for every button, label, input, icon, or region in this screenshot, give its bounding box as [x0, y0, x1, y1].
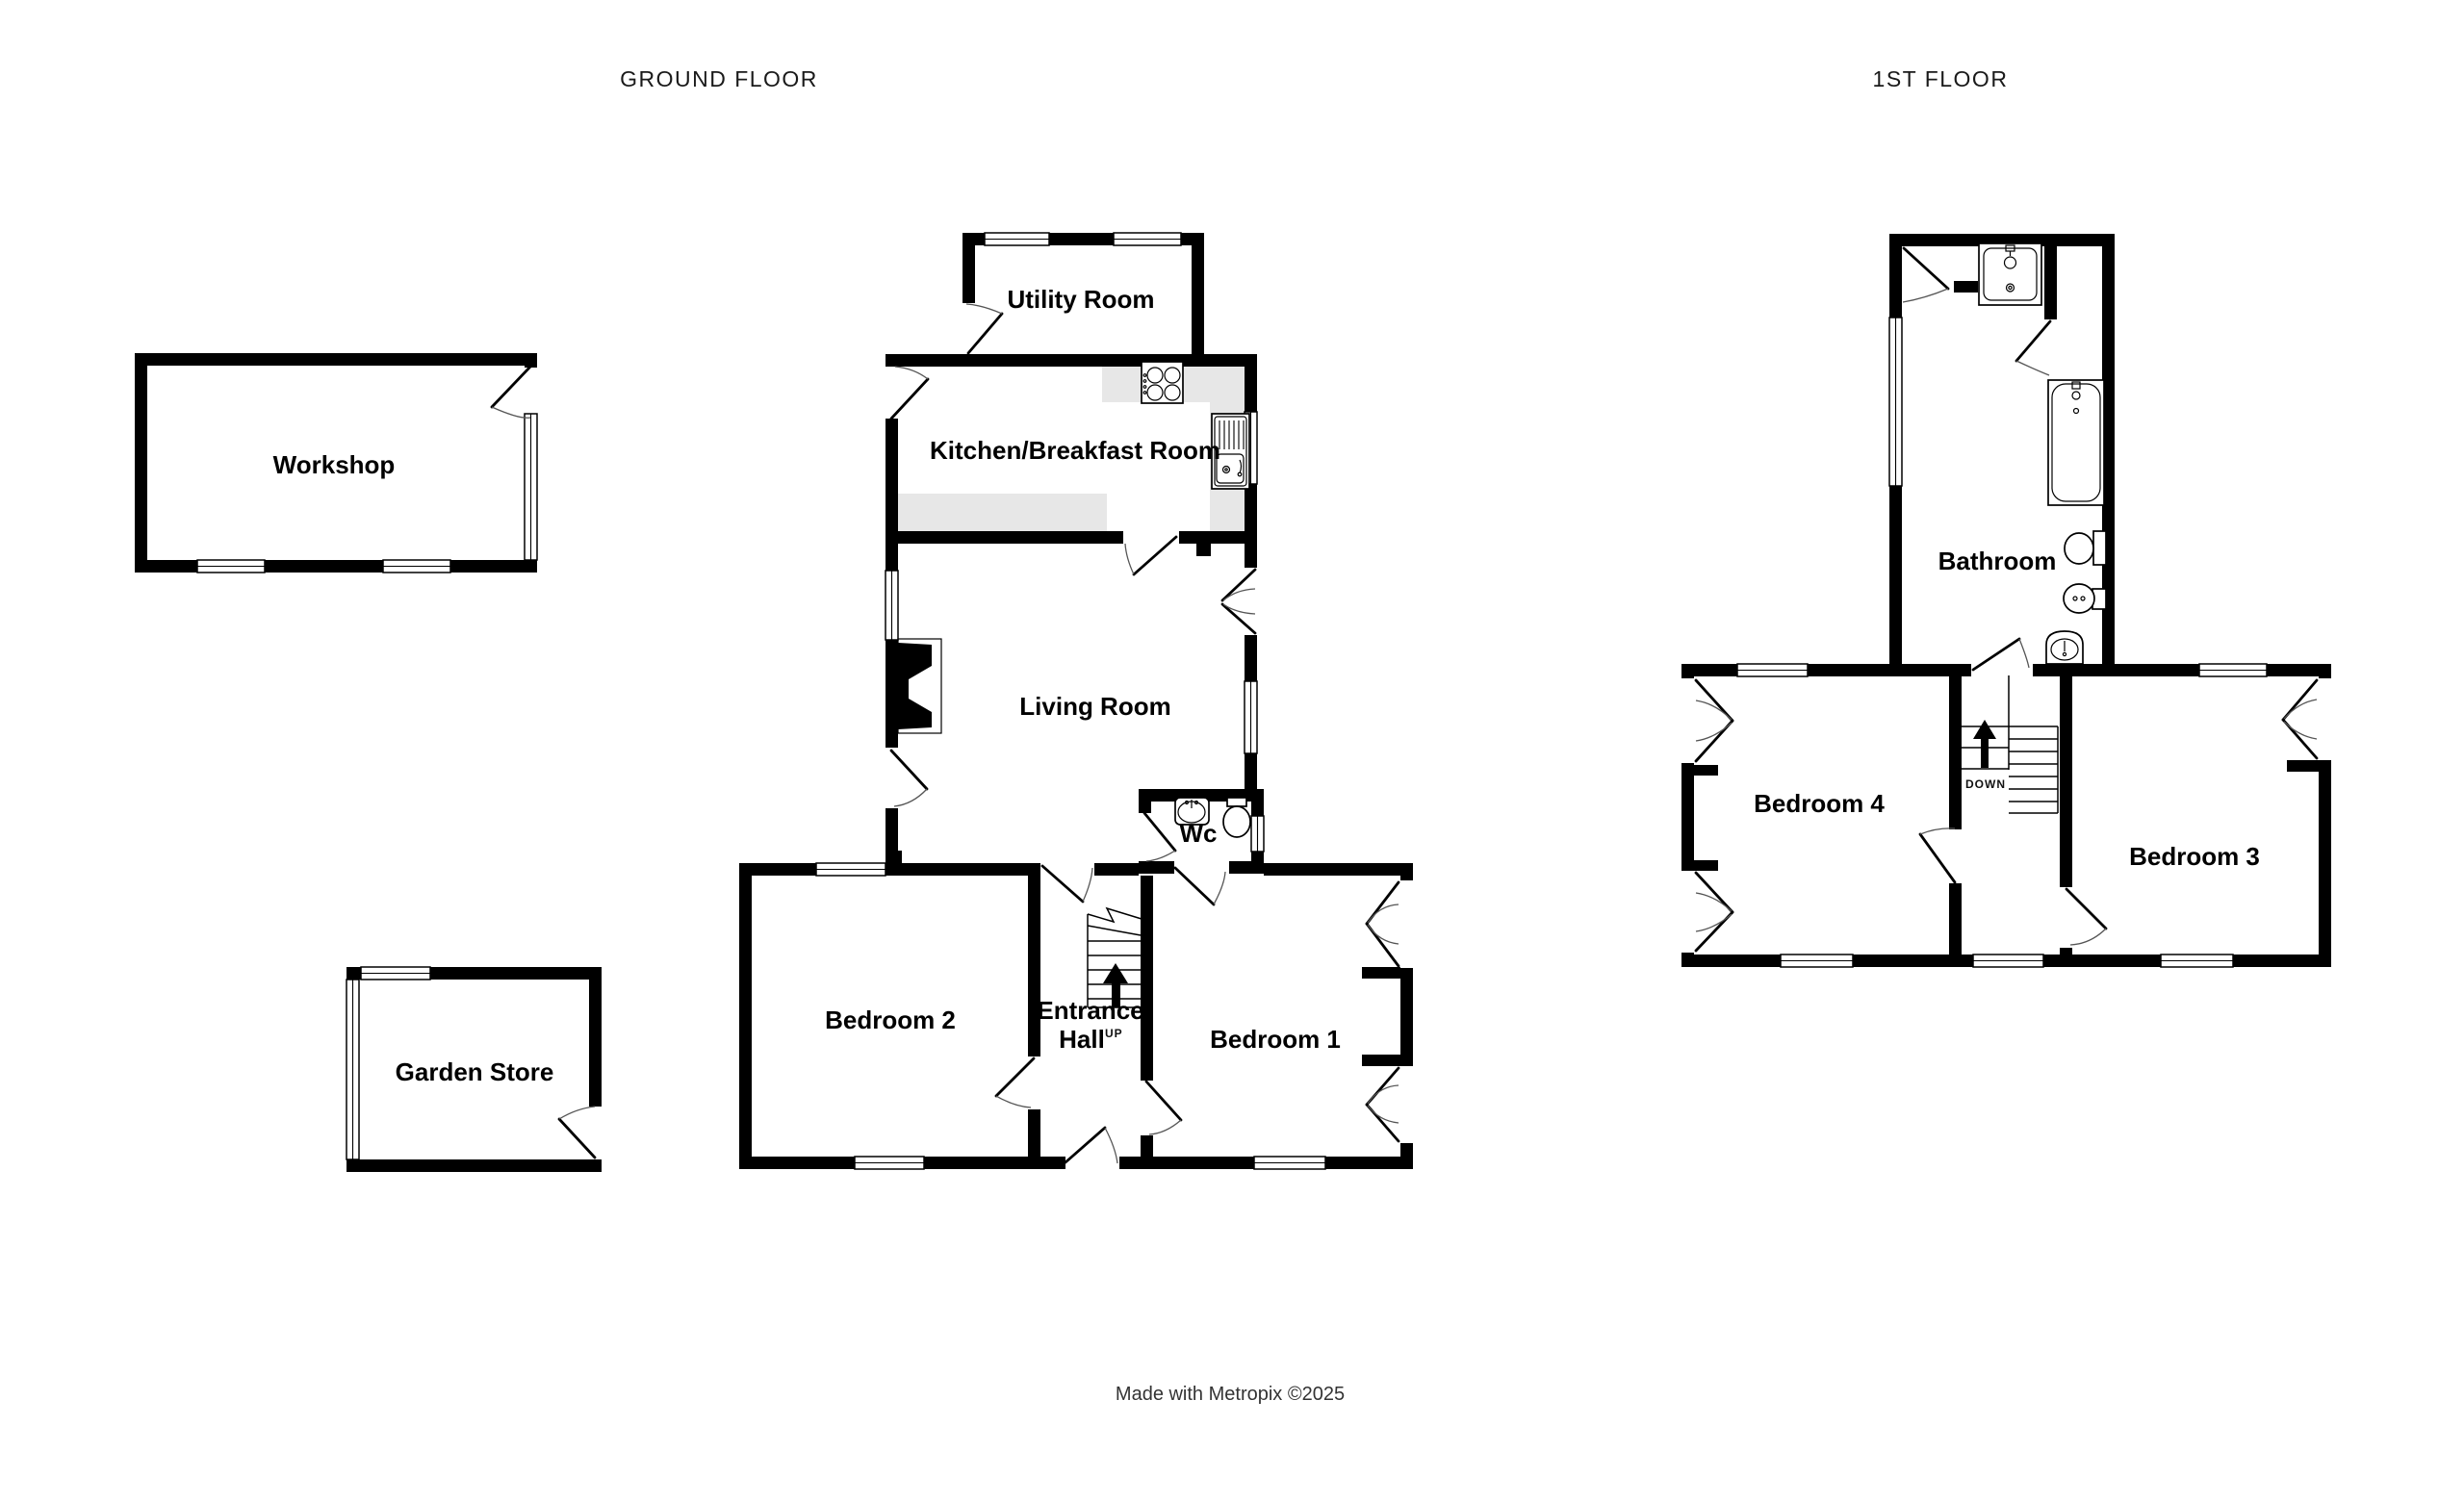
door — [1144, 813, 1175, 861]
floor-plan-canvas: GROUND FLOOR 1ST FLOOR Workshop — [0, 0, 2464, 1502]
room-label: Bedroom 4 — [1754, 789, 1885, 818]
door — [966, 304, 1002, 353]
door — [492, 367, 530, 418]
double-doors — [1696, 680, 1732, 761]
up-arrow-icon — [1973, 720, 1996, 739]
room-kitchen: Kitchen/Breakfast Room — [885, 354, 1257, 574]
room-label: Living Room — [1019, 692, 1170, 721]
door — [1125, 537, 1176, 574]
door — [1903, 248, 1948, 302]
room-workshop: Workshop — [135, 353, 537, 573]
ground-floor-title: GROUND FLOOR — [620, 66, 818, 91]
toilet-icon — [1223, 798, 1250, 837]
room-label: Bedroom 3 — [2129, 842, 2260, 871]
room-label: Wc — [1180, 819, 1218, 848]
room-wc: Wc — [1139, 789, 1264, 904]
door — [891, 751, 927, 806]
hob-icon — [1142, 362, 1183, 403]
pedestal-basin-icon — [2046, 631, 2083, 664]
door — [996, 1058, 1034, 1107]
double-doors — [1367, 1068, 1399, 1141]
room-label: Utility Room — [1007, 285, 1154, 314]
door — [1973, 639, 2029, 670]
door — [2066, 889, 2106, 945]
double-doors — [1696, 873, 1732, 951]
up-arrow-icon — [1103, 963, 1128, 983]
credit-text: Made with Metropix ©2025 — [1116, 1384, 1345, 1405]
room-bathroom: Bathroom — [1889, 234, 2115, 675]
staircase-down: DOWN — [1962, 675, 2058, 813]
window — [1251, 816, 1264, 852]
door — [1042, 866, 1092, 902]
door — [1175, 868, 1225, 904]
room-label: Bathroom — [1938, 547, 2057, 575]
room-garden-store: Garden Store — [346, 967, 602, 1172]
first-floor-title: 1ST FLOOR — [1873, 66, 2009, 91]
bidet-icon — [2064, 584, 2106, 613]
room-bedroom-2: Bedroom 2 — [739, 851, 1039, 1169]
room-label: Entrance — [1037, 996, 1143, 1025]
bathtub-icon — [2048, 380, 2104, 505]
double-doors — [1222, 570, 1255, 633]
room-utility: Utility Room — [962, 233, 1204, 368]
door — [1920, 828, 1955, 882]
front-door — [1065, 1128, 1117, 1163]
double-doors — [2283, 680, 2317, 758]
double-doors — [1367, 882, 1399, 966]
room-label: Bedroom 2 — [825, 1006, 956, 1034]
shower-icon — [1979, 243, 2041, 305]
room-label: Hall — [1059, 1025, 1105, 1054]
room-entrance-hall: Entrance Hall UP — [996, 863, 1181, 1169]
floor-plan-page: GROUND FLOOR 1ST FLOOR Workshop — [0, 0, 2464, 1502]
stairs-down-label: DOWN — [1965, 777, 2006, 791]
window — [197, 414, 537, 573]
window — [1254, 1157, 1325, 1169]
room-label: Kitchen/Breakfast Room — [930, 436, 1220, 465]
room-label: Bedroom 1 — [1210, 1025, 1341, 1054]
first-floor-block: DOWN Bedroom 4 Bedroom 3 — [1681, 639, 2331, 967]
door — [559, 1107, 595, 1158]
staircase-up — [1088, 908, 1142, 1007]
toilet-icon — [2065, 531, 2106, 565]
room-label: Workshop — [273, 450, 396, 479]
door — [891, 367, 928, 419]
stairs-up-label: UP — [1105, 1027, 1123, 1040]
fireplace-icon — [898, 639, 941, 733]
door — [2016, 321, 2050, 375]
room-bedroom-1: Bedroom 1 — [1153, 863, 1413, 1169]
room-label: Garden Store — [396, 1057, 554, 1086]
window — [1889, 318, 1902, 486]
door — [1146, 1082, 1181, 1134]
